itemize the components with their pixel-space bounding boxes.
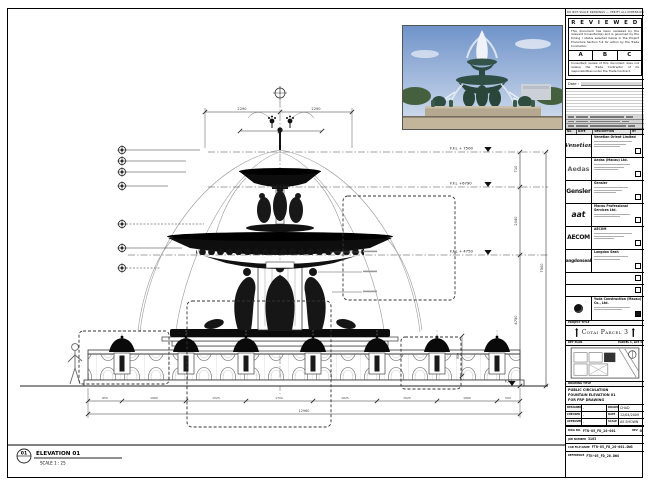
keynote-leaders [318, 251, 377, 293]
svg-text:590: 590 [505, 396, 511, 400]
consultant-checkbox[interactable] [635, 217, 641, 223]
svg-text:2040: 2040 [514, 216, 518, 226]
consultant-checkbox[interactable] [635, 171, 641, 177]
gensler-logo: Gensler [566, 181, 591, 203]
job-number-label: JOB NUMBER [568, 438, 586, 441]
rev-col-date: DATE [577, 130, 593, 134]
scale-value: AS SHOWN [619, 419, 644, 426]
svg-text:1660: 1660 [463, 396, 471, 400]
human-figure [68, 344, 82, 384]
ornament-icon [575, 328, 579, 337]
venetian-logo: Venetian [566, 135, 591, 157]
svg-text:F.F.L +6790: F.F.L +6790 [450, 181, 472, 186]
consultant-checkbox[interactable] [635, 148, 641, 154]
approved-label: APPROVED [566, 419, 582, 426]
elevation-scale: SCALE 1 : 25 [40, 461, 66, 466]
review-stamp-body: This document has been reviewed by the r… [569, 28, 641, 50]
consultant-row-empty [566, 285, 644, 297]
rev-col-no: NO. [566, 130, 577, 134]
bottom-dimensions: 850 1660 1525 1700 1625 1525 1660 590 12… [86, 388, 522, 418]
contractor-mascot-icon [566, 297, 591, 320]
svg-text:7500: 7500 [540, 263, 544, 273]
review-stamp: R E V I E W E D This document has been r… [566, 16, 644, 80]
center-marker-icon [273, 86, 287, 100]
contractor-checkbox[interactable] [635, 311, 641, 317]
job-number-value: 3103 [588, 437, 596, 441]
title-block-top-strip: DO NOT SCALE DRAWINGS — VERIFY ALL DIMEN… [566, 9, 644, 16]
cad-file-row: CAD FILE NAME FTN-05_FD_20-001.DWG [566, 444, 644, 452]
pedestal-figures [203, 264, 357, 331]
consultant-name: Langdon Seah [594, 251, 642, 255]
consultant-name: Macau Professional Services Ltd. [594, 205, 642, 212]
svg-text:1525: 1525 [212, 396, 220, 400]
key-plan-caption: PARCEL 1, LOT 3 [618, 341, 642, 344]
drawing-sheet: 2290 2290 F.F.L + 7500 F.F.L +6790 F.F.L… [0, 0, 650, 488]
consultant-checkbox[interactable] [635, 287, 641, 293]
svg-text:850: 850 [102, 396, 108, 400]
reference-row: REFERENCE FTN-05_FD_20.DWG [566, 452, 644, 460]
ornament-icon [631, 328, 635, 337]
fountain-reference-photo [402, 25, 563, 130]
review-stamp-disclaimer: Consultant review of this document does … [569, 61, 641, 75]
svg-text:F.F.L + 4750: F.F.L + 4750 [450, 249, 474, 254]
svg-text:1660: 1660 [150, 396, 158, 400]
designed-label: DESIGNED [566, 405, 582, 412]
title-block: DO NOT SCALE DRAWINGS — VERIFY ALL DIMEN… [565, 9, 644, 477]
top-dimensions: 2290 2290 [203, 107, 354, 148]
svg-text:4750: 4750 [514, 315, 518, 325]
svg-text:1525: 1525 [403, 396, 411, 400]
consultant-checkbox[interactable] [635, 275, 641, 281]
svg-text:12960: 12960 [299, 409, 310, 413]
consultant-checkbox[interactable] [635, 194, 641, 200]
cad-file-label: CAD FILE NAME [568, 446, 590, 449]
date-value: 12/04/2009 [619, 412, 644, 419]
rev-label: REV [632, 429, 638, 432]
mid-basin [167, 232, 393, 269]
drawing-title-line3: FOR FRP DRAWING [568, 398, 642, 403]
stamp-date-row: Date : [566, 80, 644, 89]
checked-label: CHECKED [566, 412, 582, 419]
consultant-name: AECOM [594, 228, 642, 232]
elevation-title: 01 ELEVATION 01 SCALE 1 : 25 [17, 449, 122, 466]
consultant-name: Gensler [594, 182, 642, 186]
date-fill-in-line[interactable] [581, 82, 642, 86]
consultant-name: Aedas (Macau) Ltd. [594, 159, 642, 163]
svg-text:F.F.L + 7500: F.F.L + 7500 [450, 146, 474, 151]
dwg-no-row: DWG NO. FTN-05_FD_20-001 REV 0 [566, 427, 644, 436]
svg-text:1625: 1625 [341, 396, 349, 400]
consultant-row-gensler: Gensler Gensler [566, 181, 644, 204]
rev-col-by: BY [631, 130, 644, 134]
aat-logo: aat [566, 204, 591, 226]
left-callouts [117, 145, 204, 273]
svg-text:710: 710 [514, 165, 518, 173]
approved-value: - [582, 419, 607, 426]
jet-finials [268, 116, 294, 129]
drawn-label: DRAWN [607, 405, 619, 412]
elevation-label: ELEVATION 01 [36, 451, 80, 457]
reference-value: FTN-05_FD_20.DWG [586, 454, 619, 458]
review-option-a[interactable]: A [569, 51, 593, 60]
langdonseah-logo: langdonseah [566, 250, 591, 272]
consultant-checkbox[interactable] [635, 263, 641, 269]
revision-table: NO. DATE DESCRIPTION BY [566, 89, 644, 135]
consultant-row-aedas: Aedas Aedas (Macau) Ltd. [566, 158, 644, 181]
review-option-c[interactable]: C [618, 51, 641, 60]
aedas-logo: Aedas [566, 158, 591, 180]
consultant-row-aecom: AECOM AECOM [566, 227, 644, 250]
revision-table-header: NO. DATE DESCRIPTION BY [566, 129, 644, 134]
svg-text:1700: 1700 [275, 396, 283, 400]
review-options: A B C [569, 50, 641, 61]
date-field-label: DATE [607, 412, 619, 419]
contractor-row: Yuda Construction (Macau) Co., Ltd. [566, 297, 644, 321]
top-strip-note: DO NOT SCALE DRAWINGS — VERIFY ALL DIMEN… [567, 11, 644, 14]
revision-empty-rows [566, 89, 644, 115]
project-title-block: PROJECT TITLE Cotai Parcel 3 [566, 321, 644, 341]
svg-text:F.F.L.: F.F.L. [505, 379, 514, 384]
putti-figures [246, 186, 314, 232]
scale-field-label: SCALE [607, 419, 619, 426]
project-name: Cotai Parcel 3 [582, 329, 629, 336]
contractor-name: Yuda Construction (Macau) Co., Ltd. [594, 298, 642, 305]
consultant-row-langdonseah: langdonseah Langdon Seah [566, 250, 644, 273]
job-number-row: JOB NUMBER 3103 [566, 436, 644, 444]
designed-value: - [582, 405, 607, 412]
consultant-checkbox[interactable] [635, 240, 641, 246]
checked-value: - [582, 412, 607, 419]
svg-text:2290: 2290 [237, 107, 247, 111]
reference-label: REFERENCE [568, 454, 584, 457]
elevation-marker-number: 01 [21, 451, 27, 457]
aecom-logo: AECOM [566, 227, 591, 249]
date-label: Date : [568, 82, 579, 86]
cad-file-value: FTN-05_FD_20-001.DWG [592, 445, 633, 449]
consultant-row-empty [566, 273, 644, 285]
consultant-row-aat: aat Macau Professional Services Ltd. [566, 204, 644, 227]
review-option-b[interactable]: B [593, 51, 617, 60]
key-plan-map [566, 346, 644, 381]
review-stamp-title: R E V I E W E D [569, 19, 641, 28]
consultant-name: Venetian Orient Limited [594, 136, 642, 140]
drawing-title-block: DRAWING TITLE PUBLIC CIRCULATION FOUNTAI… [566, 382, 644, 405]
key-plan-block: KEY PLAN PARCEL 1, LOT 3 [566, 341, 644, 382]
signature-fields: DESIGNED - DRAWN CHAD CHECKED - DATE 12/… [566, 405, 644, 427]
svg-text:900: 900 [456, 353, 460, 359]
rev-value: 0 [640, 429, 642, 433]
dwg-no-label: DWG NO. [568, 429, 581, 432]
dwg-no-value: FTN-05_FD_20-001 [583, 429, 616, 433]
rev-col-description: DESCRIPTION [593, 130, 631, 134]
consultant-row-venetian: Venetian Venetian Orient Limited [566, 135, 644, 158]
key-plan-label: KEY PLAN [568, 341, 582, 344]
svg-text:2290: 2290 [311, 107, 321, 111]
drawn-value: CHAD [619, 405, 644, 412]
